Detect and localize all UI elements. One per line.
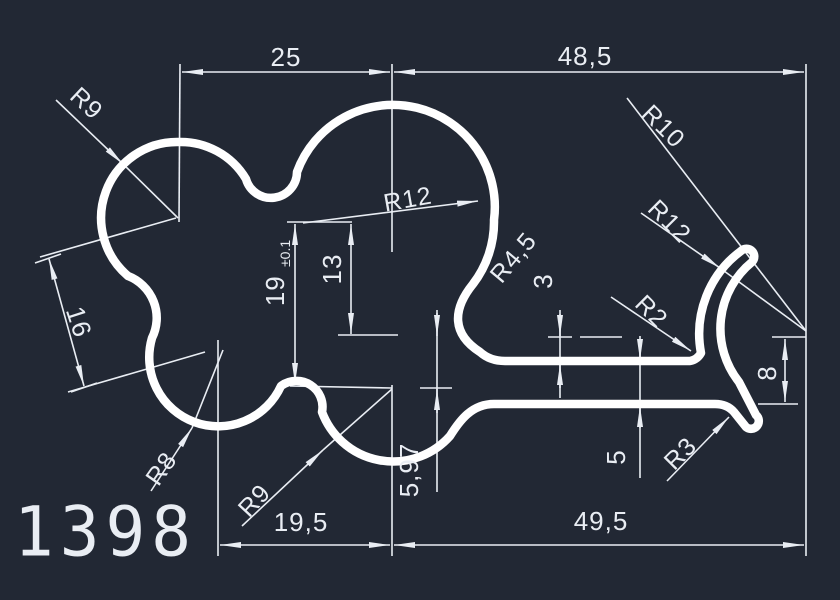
dim-label-19-tolerance: ±0.1 xyxy=(277,240,293,267)
dim-label-13: 13 xyxy=(319,254,345,285)
dim-label-49-5: 49,5 xyxy=(574,508,629,534)
dim-label-5-97: 5,97 xyxy=(396,443,422,498)
dim-label-19-tol: 19 ±0.1 xyxy=(262,240,292,306)
dim-label-19-5: 19,5 xyxy=(274,509,329,535)
dim-label-19: 19 xyxy=(260,275,290,306)
dim-label-3: 3 xyxy=(530,273,556,288)
dim-label-25: 25 xyxy=(271,44,302,70)
cad-drawing-canvas[interactable]: 25 48,5 R9 R10 R12 R12 R4,5 3 R2 19 ±0.1… xyxy=(0,0,840,600)
dim-label-5: 5 xyxy=(603,449,629,464)
dim-label-8: 8 xyxy=(754,365,780,380)
dim-label-48-5: 48,5 xyxy=(558,43,613,69)
part-number: 1398 xyxy=(14,498,197,567)
